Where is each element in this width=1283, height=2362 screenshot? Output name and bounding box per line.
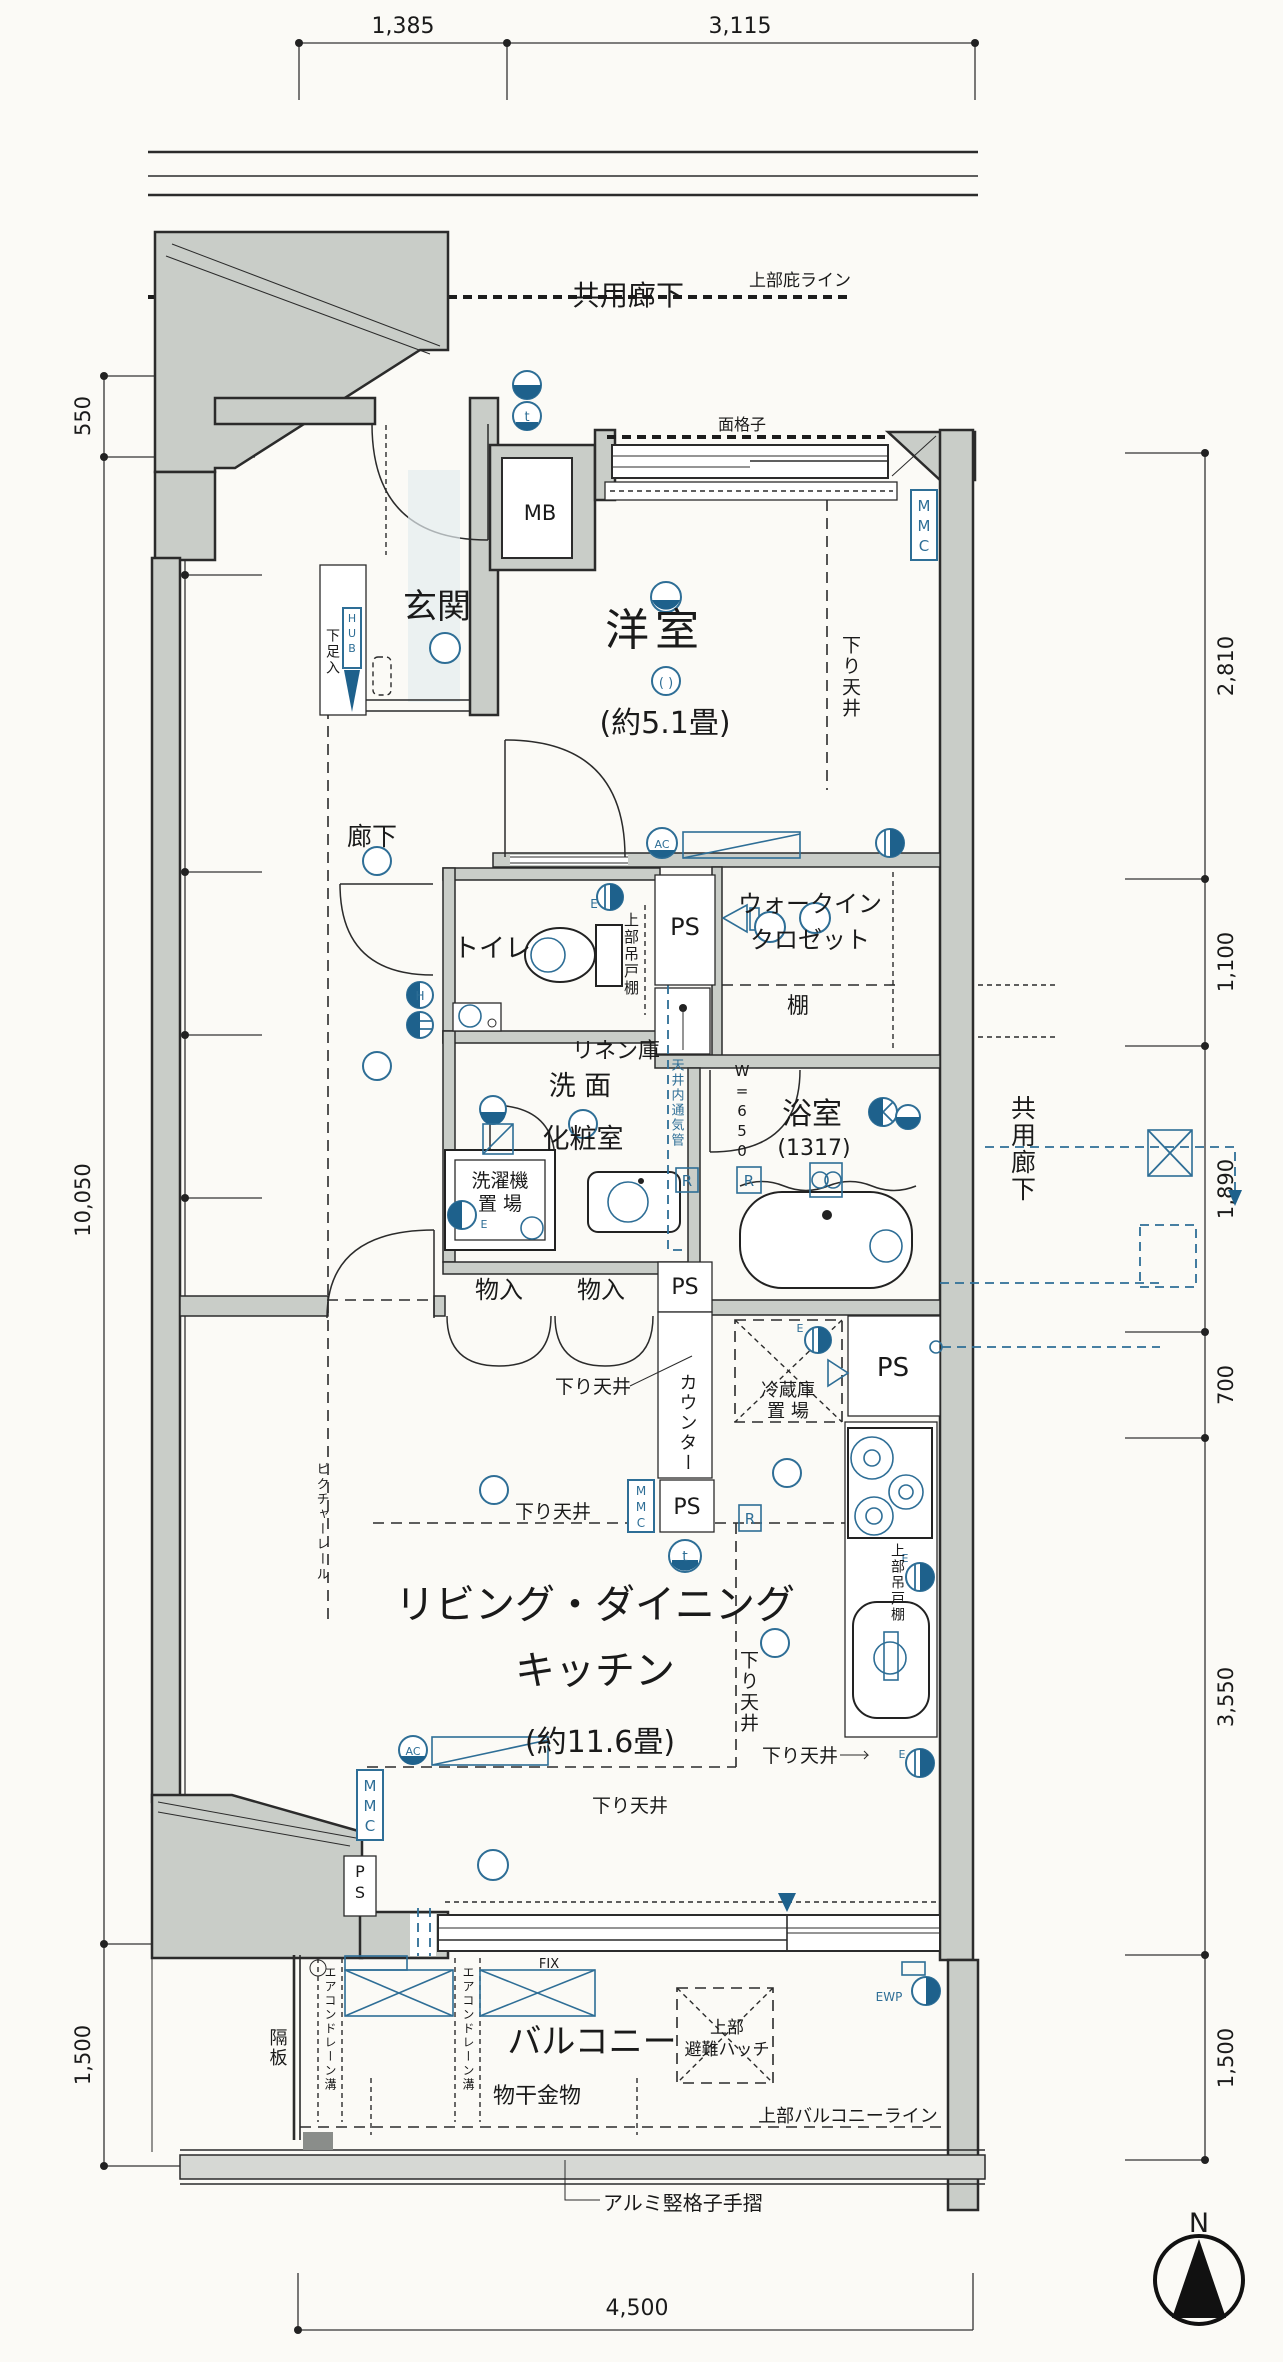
svg-text:H: H <box>415 989 424 1003</box>
svg-text:E: E <box>797 1322 804 1335</box>
dim-top: 1,385 3,115 <box>295 14 979 100</box>
ps-toilet: PS <box>670 913 700 941</box>
compass-needle <box>1172 2239 1226 2318</box>
toilet-door <box>340 884 433 975</box>
ldk-label-1: リビング・ダイニング <box>395 1582 795 1628</box>
sagari-kitchen: 下り天井 <box>762 1745 838 1767</box>
kyoyo-rouka-right: 共用廊下 <box>1008 1095 1037 1203</box>
dim-right: 2,810 1,100 1,890 700 3,550 1,500 <box>1125 449 1238 2164</box>
laundry-label-2: 置 場 <box>478 1193 522 1215</box>
e-mark: E <box>590 897 598 911</box>
right-annotations <box>930 1130 1242 1353</box>
lower-core-wall <box>152 1795 362 1958</box>
svg-text:t: t <box>524 410 529 425</box>
balcony-label: バルコニー <box>507 2022 676 2062</box>
ps-kitchen: PS <box>673 1495 700 1520</box>
svg-text:t: t <box>682 1549 688 1565</box>
mmc-bottom-label: MMC <box>361 1777 379 1837</box>
svg-text:AC: AC <box>405 1745 420 1758</box>
wic-label-1: ウォークイン <box>738 890 882 918</box>
bath-label: 浴室 <box>782 1097 842 1132</box>
floorplan-page: 上部庇ライン 共用廊下 1,385 3,115 550 10,050 1,500… <box>0 0 1283 2362</box>
dim-right-3550: 3,550 <box>1214 1667 1238 1727</box>
dim-bottom: 4,500 <box>294 2273 973 2334</box>
ldk-door <box>327 1230 434 1318</box>
dim-right-1500: 1,500 <box>1214 2028 1238 2088</box>
dim-top-3115: 3,115 <box>709 14 772 39</box>
mmc-mid-label: MMC <box>634 1484 648 1532</box>
right-dashed-box <box>1140 1225 1196 1287</box>
tana-label: 棚 <box>787 994 809 1019</box>
dim-top-1385: 1,385 <box>372 14 435 39</box>
bathtub <box>740 1192 912 1288</box>
toilet-label: トイレ <box>453 934 531 964</box>
svg-text:E: E <box>481 1218 488 1231</box>
ac-drain-2: エアコンドレーン溝 <box>461 1966 475 2092</box>
monoire-label-2: 物入 <box>577 1276 625 1304</box>
yoshitsu-label: 洋室 <box>605 605 705 656</box>
compass: N <box>1155 2208 1243 2324</box>
counter-label: カウンター <box>677 1373 698 1473</box>
ldk-size-label: (約11.6畳) <box>525 1725 675 1760</box>
hub-label: HUB <box>346 612 359 657</box>
floorplan-drawing: 上部庇ライン 共用廊下 1,385 3,115 550 10,050 1,500… <box>0 0 1283 2362</box>
kakuiita-label: 隔板 <box>267 2028 288 2068</box>
mb-label: MB <box>524 501 557 525</box>
bath-size-label: (1317) <box>777 1136 850 1161</box>
svg-text:E: E <box>899 1748 906 1761</box>
kamoi-toilet: 上部吊戸棚 <box>622 912 640 997</box>
hatch-label-2: 避難ハッチ <box>685 2040 770 2060</box>
ac-drain-1: エアコンドレーン溝 <box>323 1966 337 2092</box>
ldk-label-2: キッチン <box>515 1648 675 1694</box>
svg-text:( ): ( ) <box>659 676 673 691</box>
bedroom-door <box>505 740 625 857</box>
sagari-yoshitsu: 下り天井 <box>839 635 861 719</box>
svg-text:R: R <box>744 1172 754 1190</box>
svg-text:R: R <box>682 1172 692 1190</box>
rouka-label: 廊下 <box>347 822 397 851</box>
upper-eaves-label: 上部庇ライン <box>749 271 851 291</box>
fridge-label-2: 置 場 <box>767 1401 809 1422</box>
monoire-label-1: 物入 <box>475 1276 523 1304</box>
shared-corridor-top-label: 共用廊下 <box>572 279 684 312</box>
handrail-label: アルミ竪格子手摺 <box>603 2191 763 2215</box>
ps-balcony-label: PS <box>351 1862 370 1904</box>
balcony-line-label: 上部バルコニーライン <box>758 2106 938 2127</box>
w650-label: W=650 <box>733 1062 751 1162</box>
toilet-bowl <box>525 928 595 982</box>
senmen-label-1: 洗 面 <box>549 1071 612 1102</box>
dim-left-1500: 1,500 <box>71 2025 95 2085</box>
linen-label: リネン庫 <box>572 1039 660 1064</box>
fix-label: FIX <box>539 1957 559 1972</box>
sagari-ldk-top: 下り天井 <box>515 1501 591 1523</box>
ps-mid: PS <box>671 1275 698 1300</box>
mmc-top-label: MMC <box>915 497 933 557</box>
dim-left-10050: 10,050 <box>71 1163 95 1236</box>
ewp-label: EWP <box>876 1990 903 2004</box>
kamoi-kitchen: 上部吊戸棚 <box>889 1543 905 1623</box>
dim-right-700: 700 <box>1214 1365 1238 1405</box>
dim-left-550: 550 <box>71 396 95 436</box>
sagari-ldk-right: 下り天井 <box>737 1650 759 1734</box>
picture-rail-label: ピクチャーレール <box>314 1462 329 1582</box>
wic-label-2: クロゼット <box>750 926 870 954</box>
sagari-monoire: 下り天井 <box>555 1376 631 1398</box>
vent-pipe-label: 天井内通気管 <box>669 1058 685 1148</box>
svg-text:AC: AC <box>654 838 669 851</box>
sagari-ldk-bottom: 下り天井 <box>592 1795 668 1817</box>
laundry-label-1: 洗濯機 <box>471 1170 528 1192</box>
hatch-label-1: 上部 <box>710 2018 744 2038</box>
monohoshi-label: 物干金物 <box>493 2084 581 2109</box>
window-grille-label: 面格子 <box>718 415 766 434</box>
senmen-label-2: 化粧室 <box>543 1124 624 1155</box>
getabako-label: 下足入 <box>324 628 340 676</box>
ps-right: PS <box>877 1353 909 1383</box>
dim-right-2810: 2,810 <box>1214 636 1238 696</box>
yoshitsu-size-label: (約5.1畳) <box>599 706 730 741</box>
dim-bottom-4500: 4,500 <box>606 2296 669 2321</box>
genkan-label: 玄関 <box>403 587 471 627</box>
svg-text:R: R <box>745 1510 755 1528</box>
fridge-label-1: 冷蔵庫 <box>761 1380 815 1401</box>
dim-right-1100: 1,100 <box>1214 932 1238 992</box>
